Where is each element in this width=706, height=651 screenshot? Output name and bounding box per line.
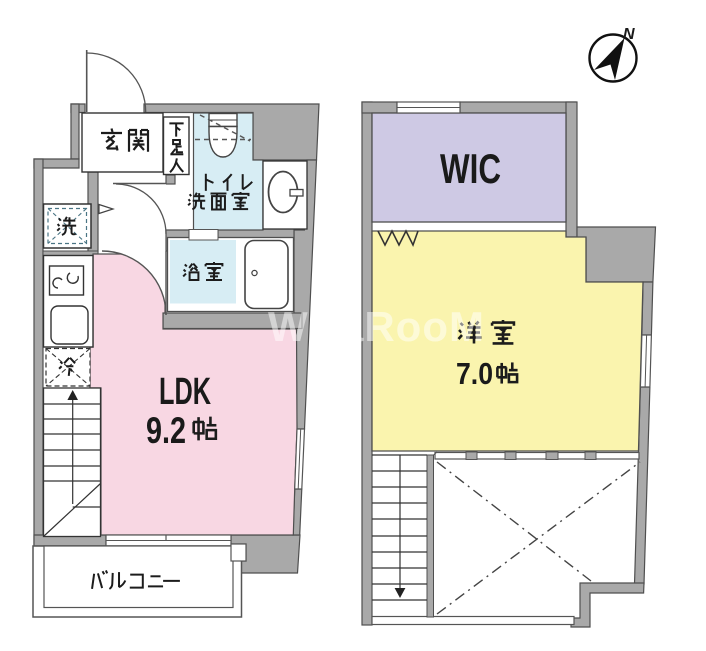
svg-text:LDK: LDK (159, 371, 211, 413)
svg-text:WIC: WIC (440, 145, 501, 192)
svg-text:N: N (623, 26, 635, 43)
svg-text:9.2: 9.2 (146, 410, 186, 451)
svg-text:7.0: 7.0 (456, 356, 493, 391)
svg-text:WCaRooM: WCaRooM (268, 303, 485, 350)
